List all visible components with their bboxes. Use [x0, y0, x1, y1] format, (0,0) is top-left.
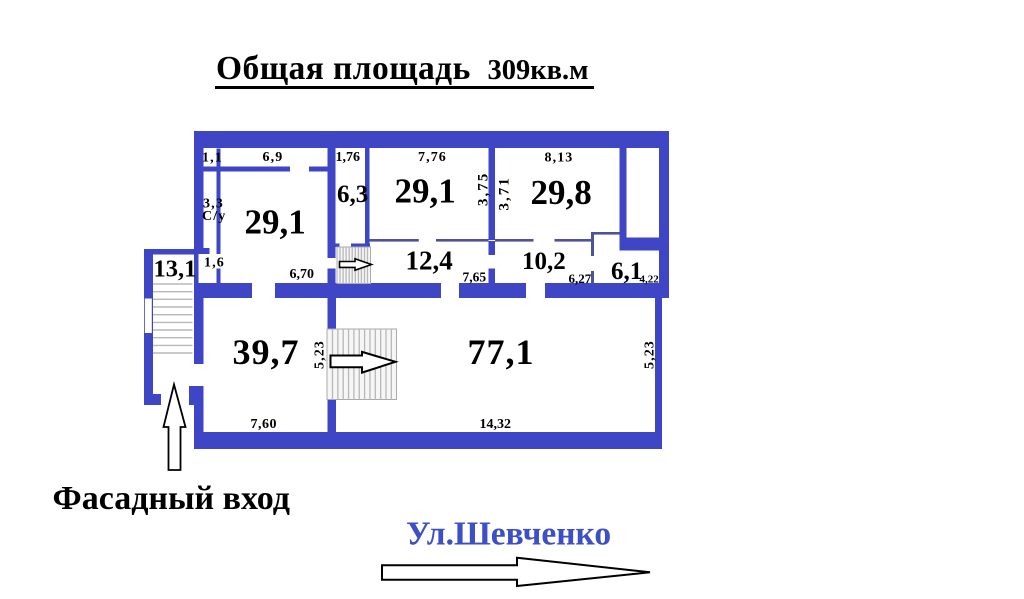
svg-text:Общая площадь: Общая площадь [216, 50, 471, 87]
svg-text:С/у: С/у [202, 209, 226, 224]
svg-text:4,22: 4,22 [640, 274, 660, 286]
svg-text:10,2: 10,2 [522, 248, 566, 275]
svg-text:13,1: 13,1 [154, 256, 197, 283]
svg-text:77,1: 77,1 [468, 332, 535, 372]
svg-text:8,13: 8,13 [545, 151, 574, 166]
svg-text:1,76: 1,76 [336, 150, 361, 165]
svg-text:1,1: 1,1 [202, 151, 223, 166]
svg-text:Ул.Шевченко: Ул.Шевченко [406, 516, 611, 553]
svg-text:12,4: 12,4 [406, 246, 453, 276]
svg-text:5,23: 5,23 [643, 340, 658, 369]
svg-text:6,1: 6,1 [611, 258, 642, 285]
svg-text:7,60: 7,60 [251, 417, 278, 432]
svg-text:39,7: 39,7 [233, 332, 300, 372]
svg-text:6,9: 6,9 [263, 150, 284, 165]
svg-text:Фасадный вход: Фасадный вход [53, 480, 290, 517]
svg-text:6,70: 6,70 [290, 267, 315, 282]
svg-text:14,32: 14,32 [480, 417, 512, 432]
svg-text:29,1: 29,1 [395, 172, 456, 211]
svg-text:6,27: 6,27 [569, 271, 592, 286]
svg-text:29,8: 29,8 [531, 173, 592, 212]
svg-text:7,65: 7,65 [463, 270, 487, 285]
svg-text:1,6: 1,6 [204, 256, 225, 271]
svg-text:29,1: 29,1 [245, 203, 306, 242]
svg-text:6,3: 6,3 [337, 181, 368, 208]
svg-text:3,75: 3,75 [476, 172, 492, 206]
svg-text:309кв.м: 309кв.м [488, 55, 589, 86]
svg-text:3,71: 3,71 [497, 176, 513, 210]
svg-text:5,23: 5,23 [313, 340, 328, 369]
svg-text:7,76: 7,76 [418, 150, 447, 165]
